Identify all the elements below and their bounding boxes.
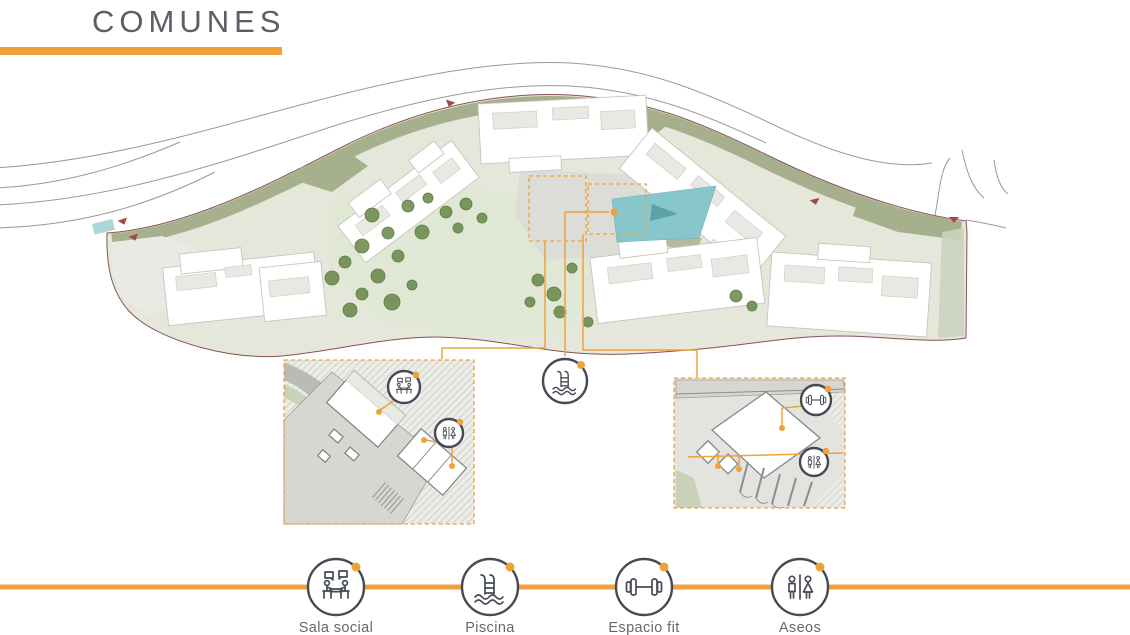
legend: Sala social Piscina Espacio fit Aseos [0, 559, 1130, 635]
legend-label-piscina: Piscina [465, 620, 515, 635]
legend-item-espacio-fit: Espacio fit [608, 559, 679, 635]
site-plan: Sala social Piscina Espacio fit Aseos [0, 0, 1130, 635]
pool-marker-dot [610, 208, 617, 215]
legend-item-sala-social: Sala social [299, 559, 374, 635]
slide-page: COMUNES [0, 0, 1130, 635]
detail-inset-sala-social [284, 360, 474, 524]
legend-item-piscina: Piscina [462, 559, 518, 635]
legend-label-espacio-fit: Espacio fit [608, 620, 679, 635]
legend-label-aseos: Aseos [779, 620, 821, 635]
legend-label-sala-social: Sala social [299, 620, 374, 635]
detail-inset-espacio-fit [674, 378, 845, 508]
legend-item-aseos: Aseos [772, 559, 828, 635]
piscina-callout-icon [543, 359, 587, 403]
